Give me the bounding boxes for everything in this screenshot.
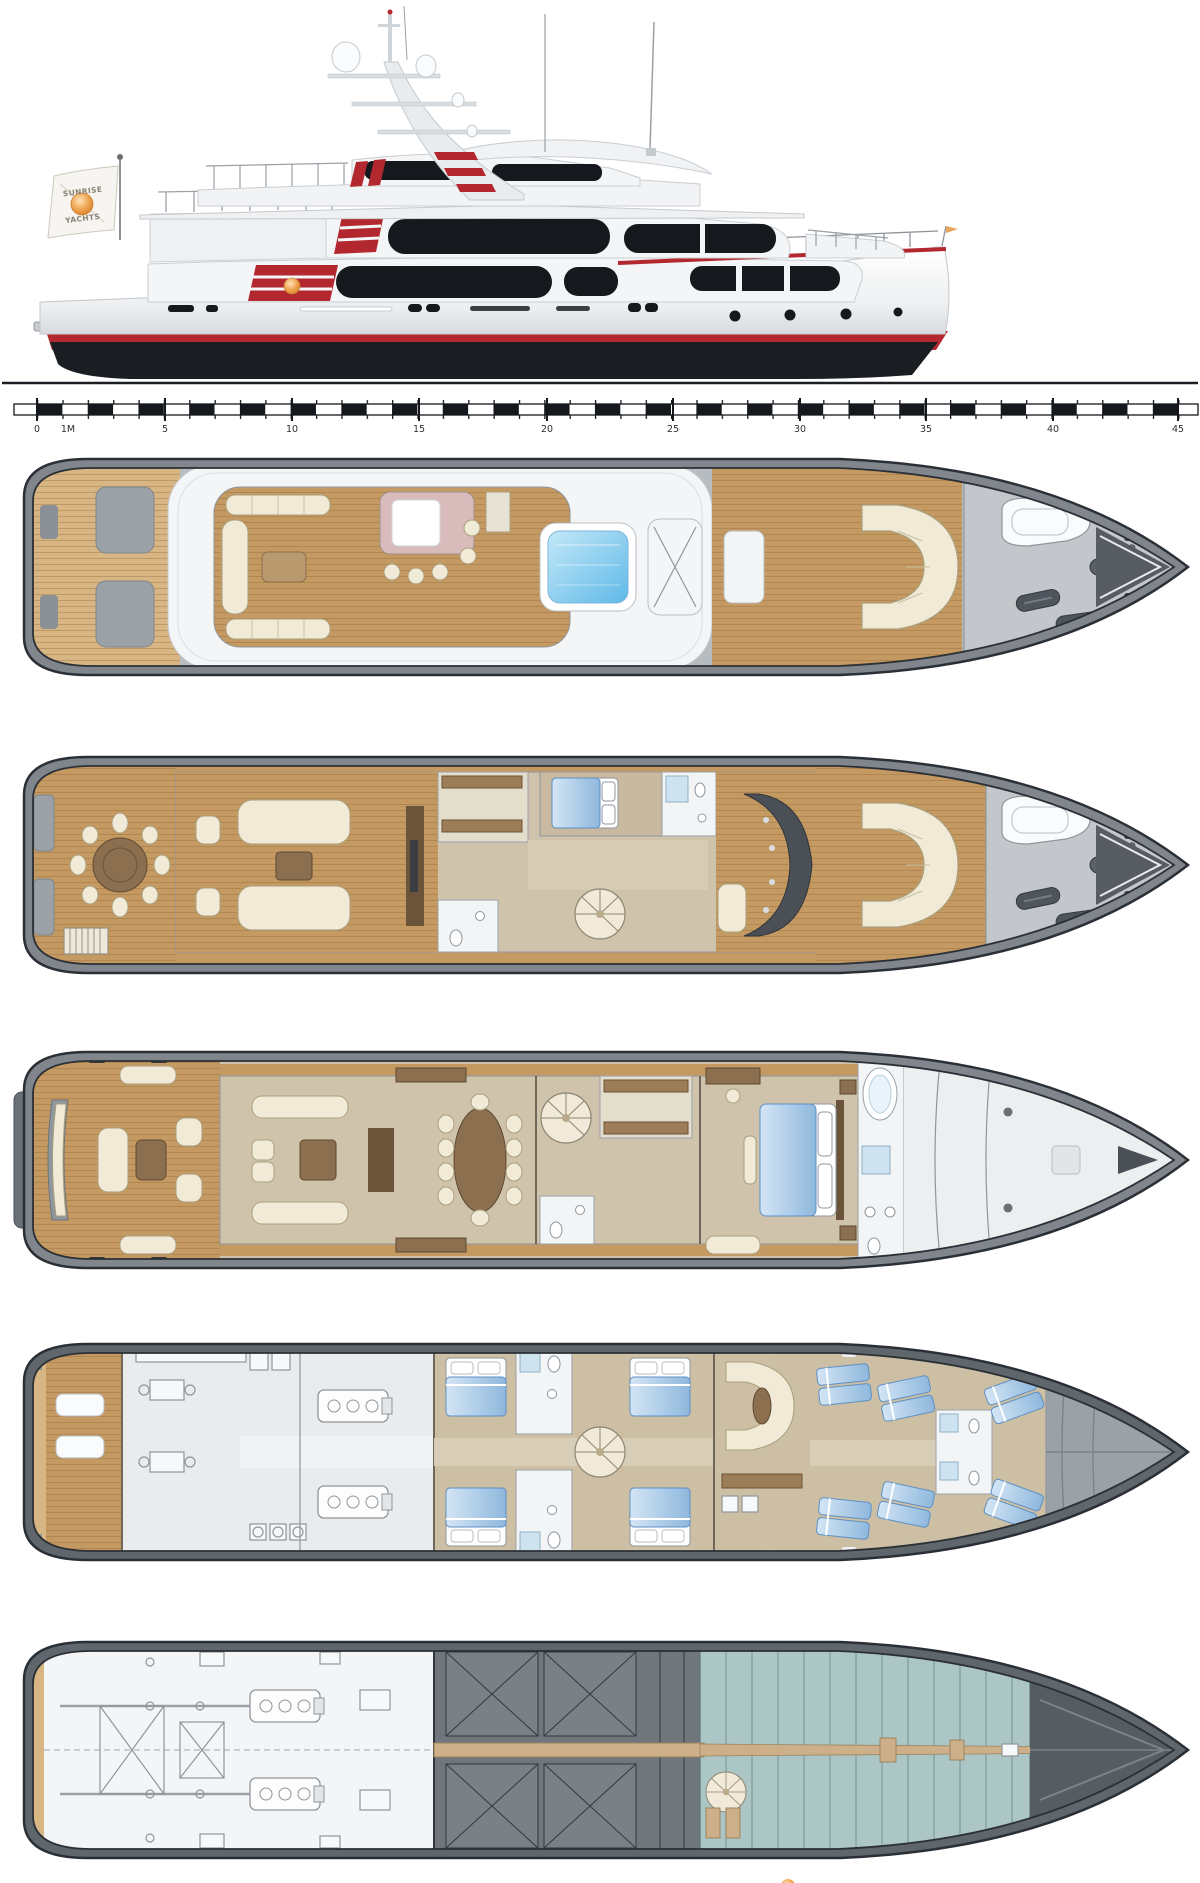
bar-stool <box>384 564 400 580</box>
captain-cabin <box>540 772 662 836</box>
sideboard <box>396 1238 466 1252</box>
spiral-staircase <box>706 1772 746 1812</box>
jacuzzi <box>540 523 636 611</box>
ruler-label-45: 45 <box>1172 424 1184 435</box>
bar-stool <box>432 564 448 580</box>
skylounge-sofa <box>238 886 350 930</box>
brand-logo-icon <box>284 278 300 294</box>
ruler-label-1m: 1M <box>61 424 75 435</box>
guest-bed <box>630 1358 690 1416</box>
upper-aft-deck <box>150 212 326 262</box>
ruler-label-10: 10 <box>286 424 298 435</box>
ruler-label-30: 30 <box>794 424 806 435</box>
guest-bed <box>446 1488 506 1546</box>
crew-and-technical-area <box>122 1344 434 1560</box>
spiral-staircase <box>575 1427 625 1477</box>
sunpad <box>96 487 154 553</box>
salon-sofa <box>252 1202 348 1224</box>
ruler-label-5: 5 <box>162 424 168 435</box>
sun-deck-plan <box>24 459 1190 675</box>
ruler-label-40: 40 <box>1047 424 1059 435</box>
guest-corridor <box>434 1438 714 1466</box>
main-engine <box>250 1690 324 1722</box>
antenna-icon <box>650 22 654 150</box>
lounger <box>56 1436 104 1458</box>
corridor <box>528 840 708 890</box>
ruler-label-25: 25 <box>667 424 679 435</box>
skylight-hatch <box>724 531 764 603</box>
main-deck-plan <box>14 1052 1190 1268</box>
bed-bench <box>744 1136 756 1184</box>
ga-drawing: SUNRISE YACHTS 0 1M 5 10 15 20 25 30 35 … <box>0 0 1200 1883</box>
ruler-label-20: 20 <box>541 424 553 435</box>
bridge-deck-plan <box>24 757 1190 973</box>
headboard <box>836 1100 844 1220</box>
bar-stool <box>408 568 424 584</box>
skylounge-window <box>388 219 610 254</box>
satdome-small-icon <box>416 55 436 77</box>
shower <box>862 1146 890 1174</box>
tank-deck-plan <box>24 1642 1190 1858</box>
main-engine <box>250 1778 324 1810</box>
upper-roof-edge <box>140 205 804 219</box>
guest-bed <box>630 1488 690 1546</box>
armchair <box>196 888 220 916</box>
galley-counter <box>722 1474 802 1488</box>
armchair <box>252 1140 274 1160</box>
builder-flag: SUNRISE YACHTS <box>48 154 123 240</box>
portuguese-bridge <box>806 234 905 258</box>
logo-dot-bottom <box>781 1879 795 1883</box>
spiral-staircase <box>575 889 625 939</box>
lounger <box>56 1394 104 1416</box>
media-cabinet <box>368 1128 394 1192</box>
aft-table <box>136 1140 166 1180</box>
profile-view: SUNRISE YACHTS <box>2 6 1198 383</box>
captain-bed <box>552 778 600 828</box>
settee-corner <box>222 520 248 614</box>
sideboard <box>396 1068 466 1082</box>
master-bathroom <box>858 1052 904 1268</box>
satdome-icon <box>332 42 360 72</box>
salon-sofa <box>252 1096 348 1118</box>
office-desk <box>706 1068 760 1084</box>
armchair <box>176 1118 202 1146</box>
armchair <box>196 816 220 844</box>
armchair <box>252 1162 274 1182</box>
underwater-hull <box>50 342 938 379</box>
scale-ruler: 0 1M 5 10 15 20 25 30 35 40 45 <box>14 398 1198 435</box>
bar-stool <box>460 548 476 564</box>
sundeck-window-2 <box>492 164 602 181</box>
day-head <box>540 1196 594 1244</box>
galley-counter <box>604 1080 688 1092</box>
spiral-staircase <box>541 1093 591 1143</box>
aft-sofa <box>98 1128 128 1192</box>
skylounge-sofa <box>238 800 350 844</box>
engine-room <box>44 1642 434 1858</box>
guest-bed <box>446 1358 506 1416</box>
bar-stool <box>464 520 480 536</box>
office-sofa <box>706 1236 760 1254</box>
coffee-table <box>276 852 312 880</box>
bow-flag-icon <box>946 226 958 233</box>
yacht-general-arrangement: SUNRISE YACHTS 0 1M 5 10 15 20 25 30 35 … <box>0 0 1200 1883</box>
lower-deck-plan <box>24 1344 1190 1560</box>
bar-back-counter <box>486 492 510 532</box>
salon-table <box>300 1140 336 1180</box>
crew-table <box>753 1388 771 1424</box>
ruler-label-0: 0 <box>34 424 40 435</box>
day-head <box>438 900 498 952</box>
sunpad <box>96 581 154 647</box>
deck-hatch <box>1052 1146 1080 1174</box>
red-accent-upper <box>334 214 384 254</box>
aft-deck-stairs <box>64 928 108 954</box>
cocktail-table <box>262 552 306 582</box>
alfresco-dining <box>70 813 170 917</box>
bow-staff <box>942 226 946 246</box>
ruler-label-15: 15 <box>413 424 425 435</box>
bow-void <box>1030 1642 1190 1858</box>
ruler-label-35: 35 <box>920 424 932 435</box>
crew-corridor <box>240 1436 434 1468</box>
dining-table <box>454 1108 506 1212</box>
armchair <box>176 1174 202 1202</box>
helm-bench <box>718 884 746 932</box>
